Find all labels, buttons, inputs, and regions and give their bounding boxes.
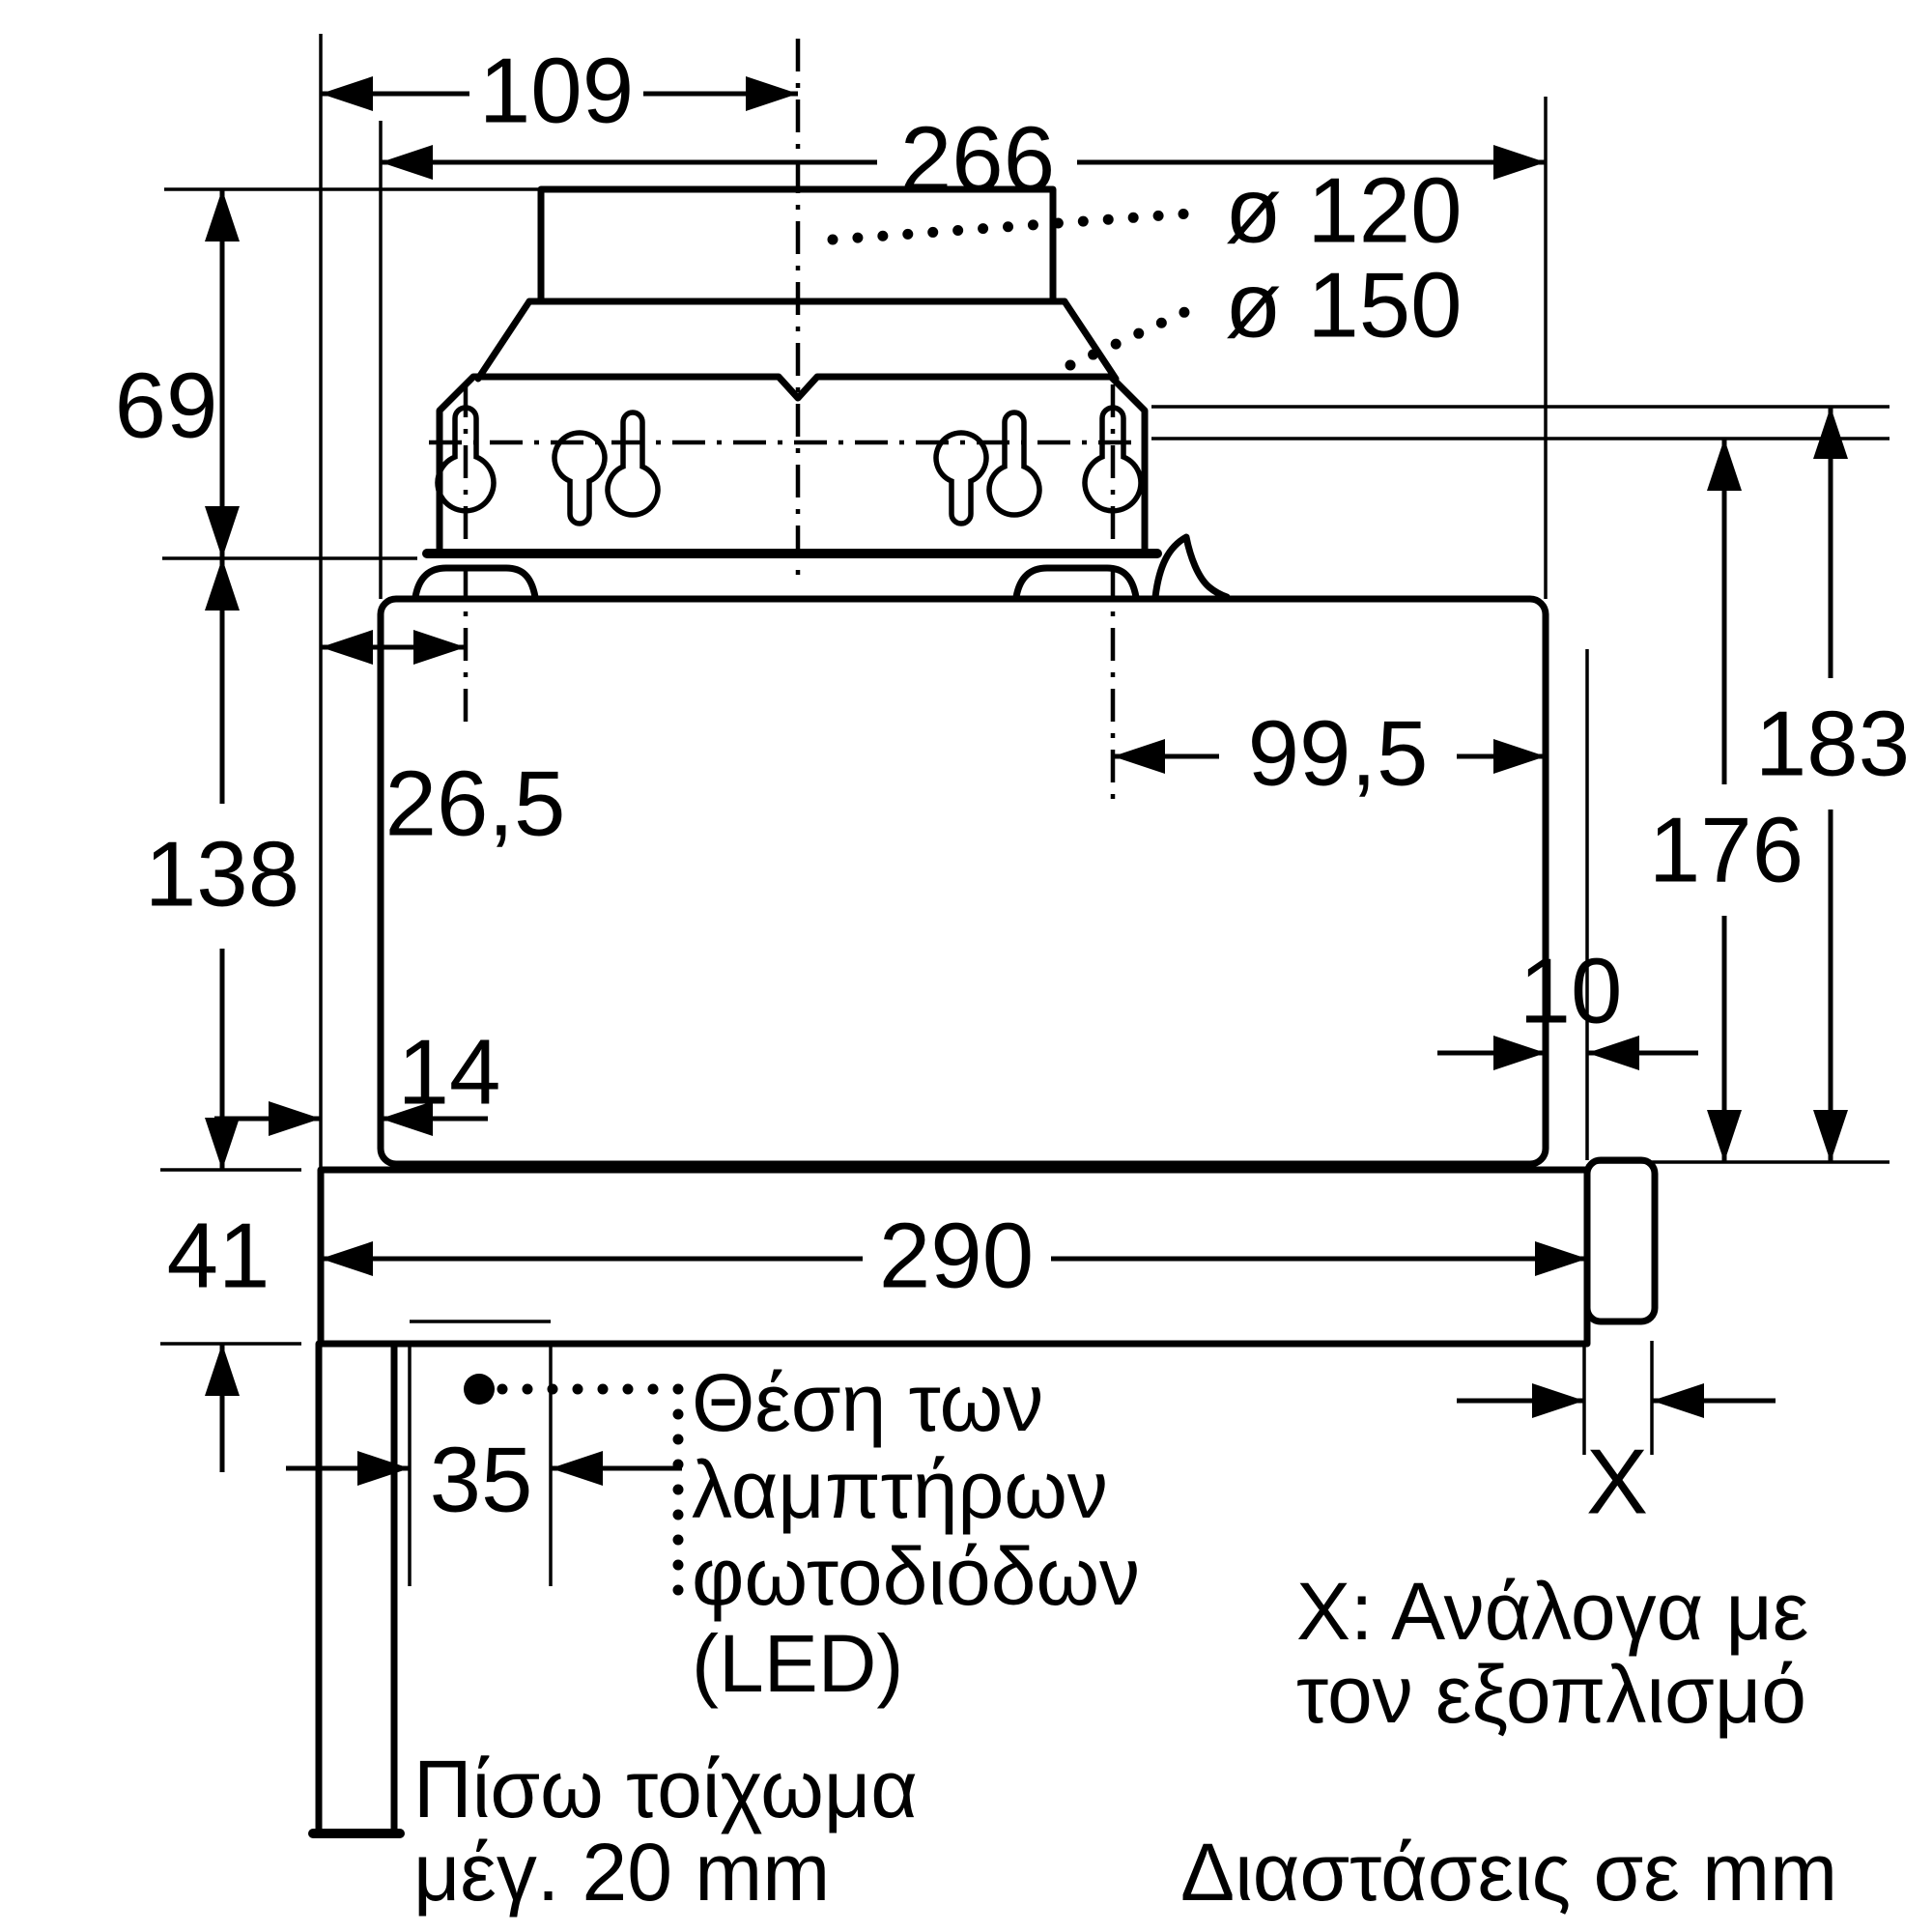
leader-diameter-120 — [833, 213, 1204, 240]
hood-dimension-diagram: 109 266 ø 120 ø 150 69 26,5 99,5 183 176… — [0, 0, 1932, 1932]
wall-note-line1: Πίσω τοίχωμα — [413, 1744, 918, 1834]
keyhole-pair1-b — [608, 412, 658, 515]
x-note-line1: Χ: Ανάλογα με — [1296, 1566, 1808, 1657]
label-99-5: 99,5 — [1248, 702, 1429, 806]
hood-body-outline — [381, 599, 1546, 1164]
bracket-foot-right — [1016, 568, 1136, 597]
label-35: 35 — [430, 1429, 533, 1532]
label-x: X — [1586, 1431, 1648, 1534]
handle-outline — [1587, 1160, 1655, 1321]
label-138: 138 — [145, 823, 299, 926]
rear-wall-lines — [319, 1344, 394, 1832]
dim-41 — [205, 1344, 240, 1472]
bracket-foot-left — [415, 568, 535, 597]
label-176: 176 — [1649, 799, 1804, 902]
label-183: 183 — [1755, 693, 1910, 796]
units-note: Διαστάσεις σε mm — [1180, 1827, 1837, 1918]
keyhole-pair2-a — [936, 433, 986, 524]
diagram-svg: 109 266 ø 120 ø 150 69 26,5 99,5 183 176… — [0, 0, 1932, 1932]
label-10: 10 — [1520, 940, 1623, 1043]
label-266: 266 — [900, 108, 1055, 212]
label-14: 14 — [398, 1021, 501, 1124]
led-note-line1: Θέση των — [692, 1357, 1043, 1448]
mounting-bracket-outline — [440, 377, 1145, 554]
label-26-5: 26,5 — [385, 753, 566, 856]
label-diameter-150: ø 150 — [1225, 254, 1462, 357]
dim-x — [1457, 1383, 1776, 1418]
led-note-line2: λαμπτήρων — [692, 1444, 1108, 1535]
label-41: 41 — [167, 1205, 270, 1308]
label-290: 290 — [879, 1205, 1034, 1308]
led-position-dot — [464, 1374, 495, 1405]
label-diameter-120: ø 120 — [1225, 159, 1462, 263]
keyhole-pair2-b — [989, 412, 1039, 515]
label-109: 109 — [479, 40, 634, 143]
label-69: 69 — [115, 355, 218, 458]
bracket-side-tab — [1155, 537, 1227, 597]
keyhole-slots — [429, 408, 1155, 524]
keyhole-pair1-a — [554, 433, 605, 524]
led-note-line4: (LED) — [692, 1618, 903, 1709]
wall-note-line2: μέγ. 20 mm — [413, 1827, 830, 1918]
led-note-line3: φωτοδιόδων — [692, 1531, 1140, 1622]
dim-26-5 — [321, 630, 466, 665]
x-note-line2: τον εξοπλισμό — [1296, 1649, 1806, 1740]
